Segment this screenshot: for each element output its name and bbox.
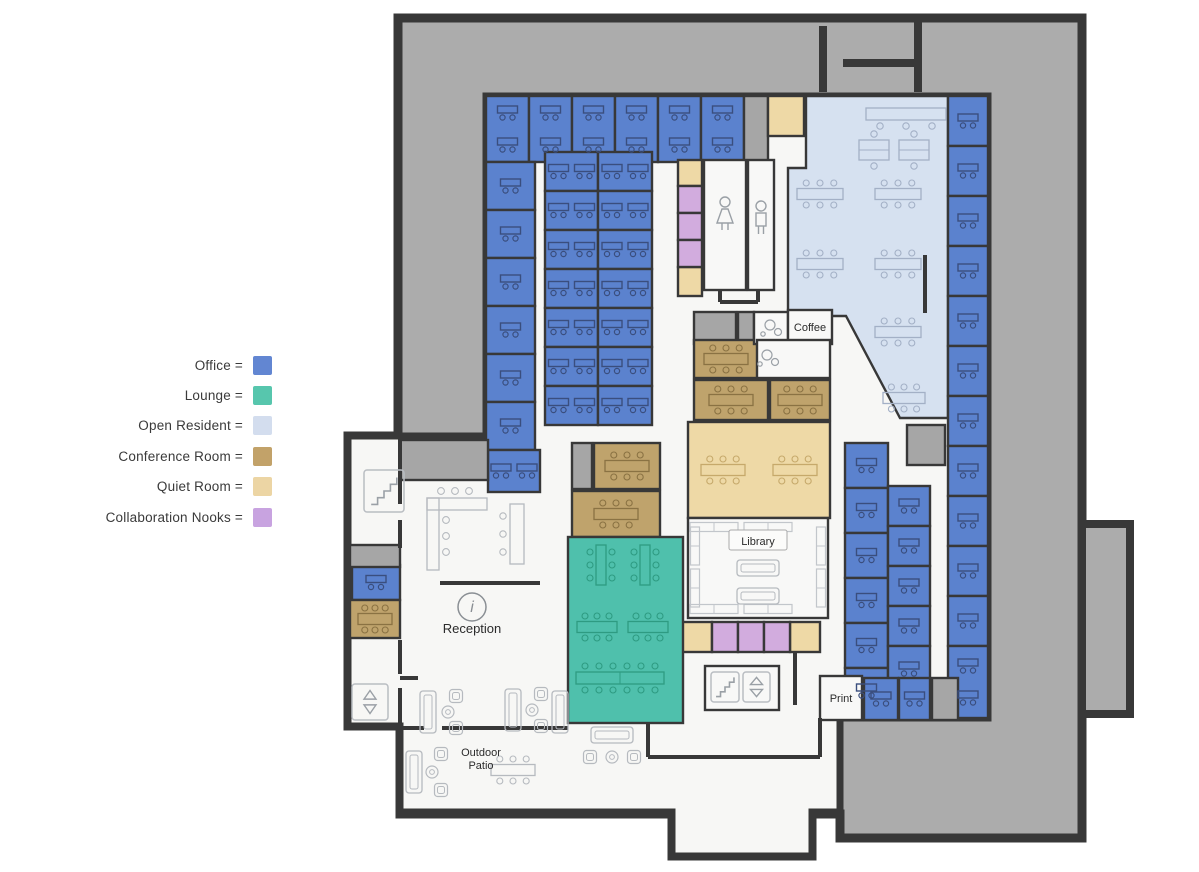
grayroom-room xyxy=(744,96,768,162)
room-label: Print xyxy=(830,693,853,705)
floor-plan-canvas: iReceptionCoffeeLibraryPrintOutdoorPatio xyxy=(0,0,1199,872)
white-room xyxy=(704,160,746,290)
quiet-room xyxy=(682,622,712,652)
building-bumpout xyxy=(1082,524,1130,714)
grayroom-room xyxy=(572,443,592,489)
floor-plan-page: Office =Lounge =Open Resident =Conferenc… xyxy=(0,0,1199,872)
quiet-room xyxy=(678,160,702,186)
grayroom-room xyxy=(907,425,945,465)
conference-room xyxy=(594,443,660,489)
white-room xyxy=(748,160,774,290)
collab-room xyxy=(764,622,790,652)
white-room xyxy=(757,340,830,378)
quiet-room xyxy=(768,96,804,136)
info-i: i xyxy=(470,599,474,616)
room-label: Coffee xyxy=(794,322,826,334)
room-label: Outdoor xyxy=(461,747,501,759)
collab-room xyxy=(712,622,738,652)
grayroom-room xyxy=(400,440,488,480)
grayroom-room xyxy=(350,545,400,567)
collab-room xyxy=(738,622,764,652)
quiet-room xyxy=(688,422,830,518)
collab-room xyxy=(678,186,702,213)
collab-room xyxy=(678,213,702,240)
collab-room xyxy=(678,240,702,267)
lounge-room xyxy=(568,537,683,723)
room-label: Library xyxy=(741,536,775,548)
grayroom-room xyxy=(932,678,958,720)
room-label: Patio xyxy=(468,760,493,772)
quiet-room xyxy=(790,622,820,652)
quiet-room xyxy=(678,267,702,296)
conference-room xyxy=(572,491,660,537)
room-label: Reception xyxy=(443,621,502,636)
